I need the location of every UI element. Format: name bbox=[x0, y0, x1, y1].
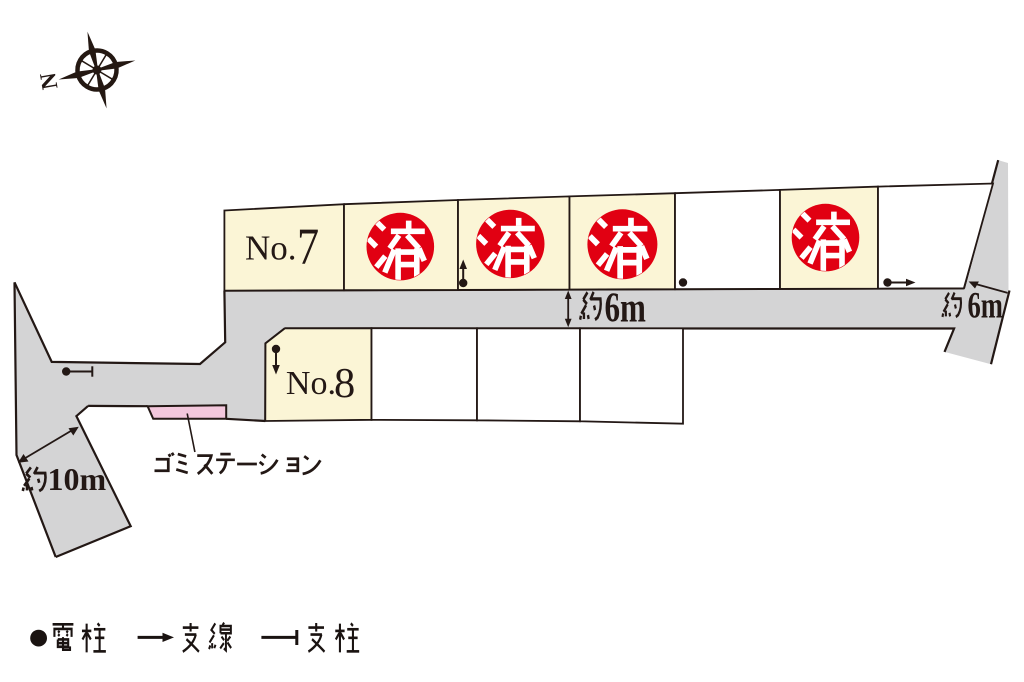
svg-text:6m: 6m bbox=[968, 284, 1004, 325]
svg-text:10m: 10m bbox=[48, 461, 107, 497]
svg-text:8: 8 bbox=[334, 360, 355, 407]
svg-text:No.: No. bbox=[245, 229, 297, 268]
svg-text:7: 7 bbox=[297, 218, 319, 275]
svg-text:No.: No. bbox=[286, 365, 336, 402]
svg-text:6m: 6m bbox=[605, 284, 647, 331]
